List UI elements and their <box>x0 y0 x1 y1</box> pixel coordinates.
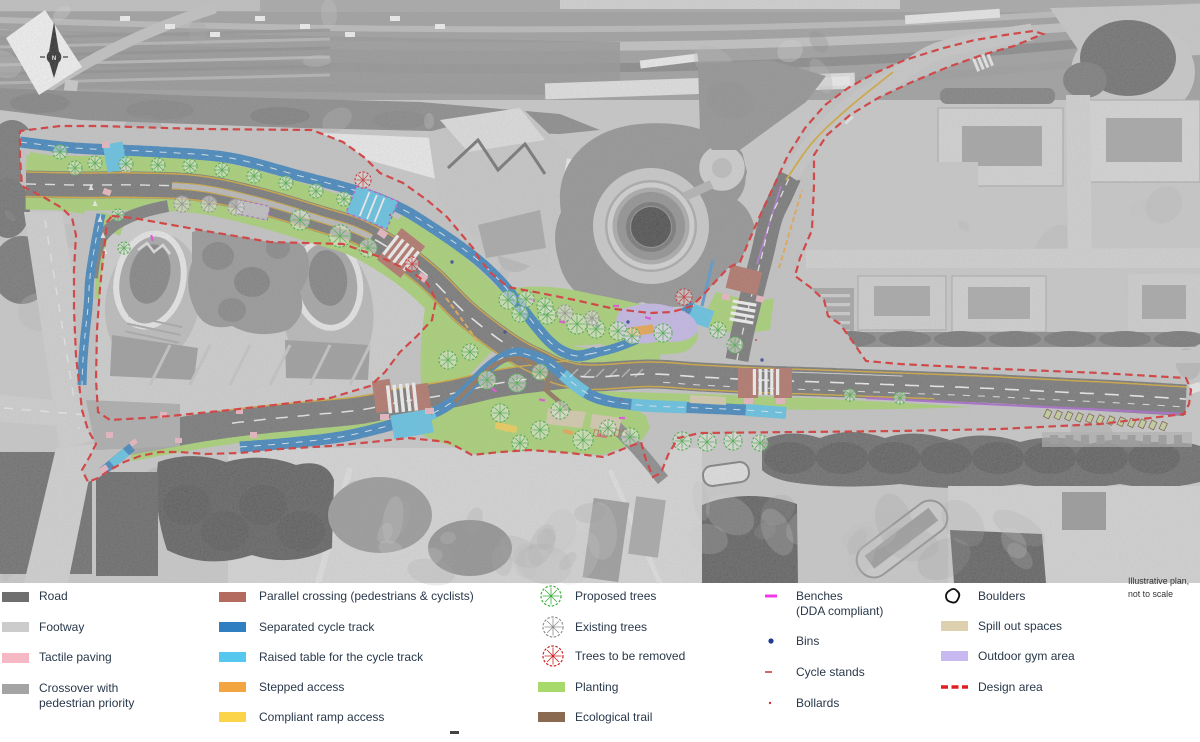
svg-text:Benches: Benches <box>796 589 843 603</box>
svg-text:Separated cycle track: Separated cycle track <box>259 620 375 634</box>
svg-text:Spill out spaces: Spill out spaces <box>978 619 1062 633</box>
svg-text:not to scale: not to scale <box>1128 589 1173 599</box>
svg-text:Planting: Planting <box>575 680 618 694</box>
svg-text:Compliant ramp access: Compliant ramp access <box>259 710 384 724</box>
svg-text:Design area: Design area <box>978 680 1043 694</box>
svg-text:Footway: Footway <box>39 620 84 634</box>
svg-text:Ecological trail: Ecological trail <box>575 710 652 724</box>
svg-text:Tactile paving: Tactile paving <box>39 650 112 664</box>
svg-text:Bins: Bins <box>796 634 819 648</box>
svg-text:Illustrative plan,: Illustrative plan, <box>1128 576 1189 586</box>
svg-text:Stepped access: Stepped access <box>259 680 344 694</box>
svg-text:Bollards: Bollards <box>796 696 839 710</box>
svg-text:Proposed trees: Proposed trees <box>575 589 656 603</box>
svg-text:Outdoor gym area: Outdoor gym area <box>978 649 1075 663</box>
svg-text:(DDA compliant): (DDA compliant) <box>796 604 883 618</box>
svg-text:Road: Road <box>39 589 68 603</box>
svg-text:pedestrian priority: pedestrian priority <box>39 696 134 710</box>
svg-text:Parallel crossing (pedestrians: Parallel crossing (pedestrians & cyclist… <box>259 589 474 603</box>
svg-text:Existing trees: Existing trees <box>575 620 647 634</box>
svg-text:Crossover with: Crossover with <box>39 681 118 695</box>
svg-text:Trees to be removed: Trees to be removed <box>575 649 685 663</box>
svg-text:Raised table for the cycle tra: Raised table for the cycle track <box>259 650 424 664</box>
svg-text:Boulders: Boulders <box>978 589 1025 603</box>
svg-text:Cycle stands: Cycle stands <box>796 665 865 679</box>
